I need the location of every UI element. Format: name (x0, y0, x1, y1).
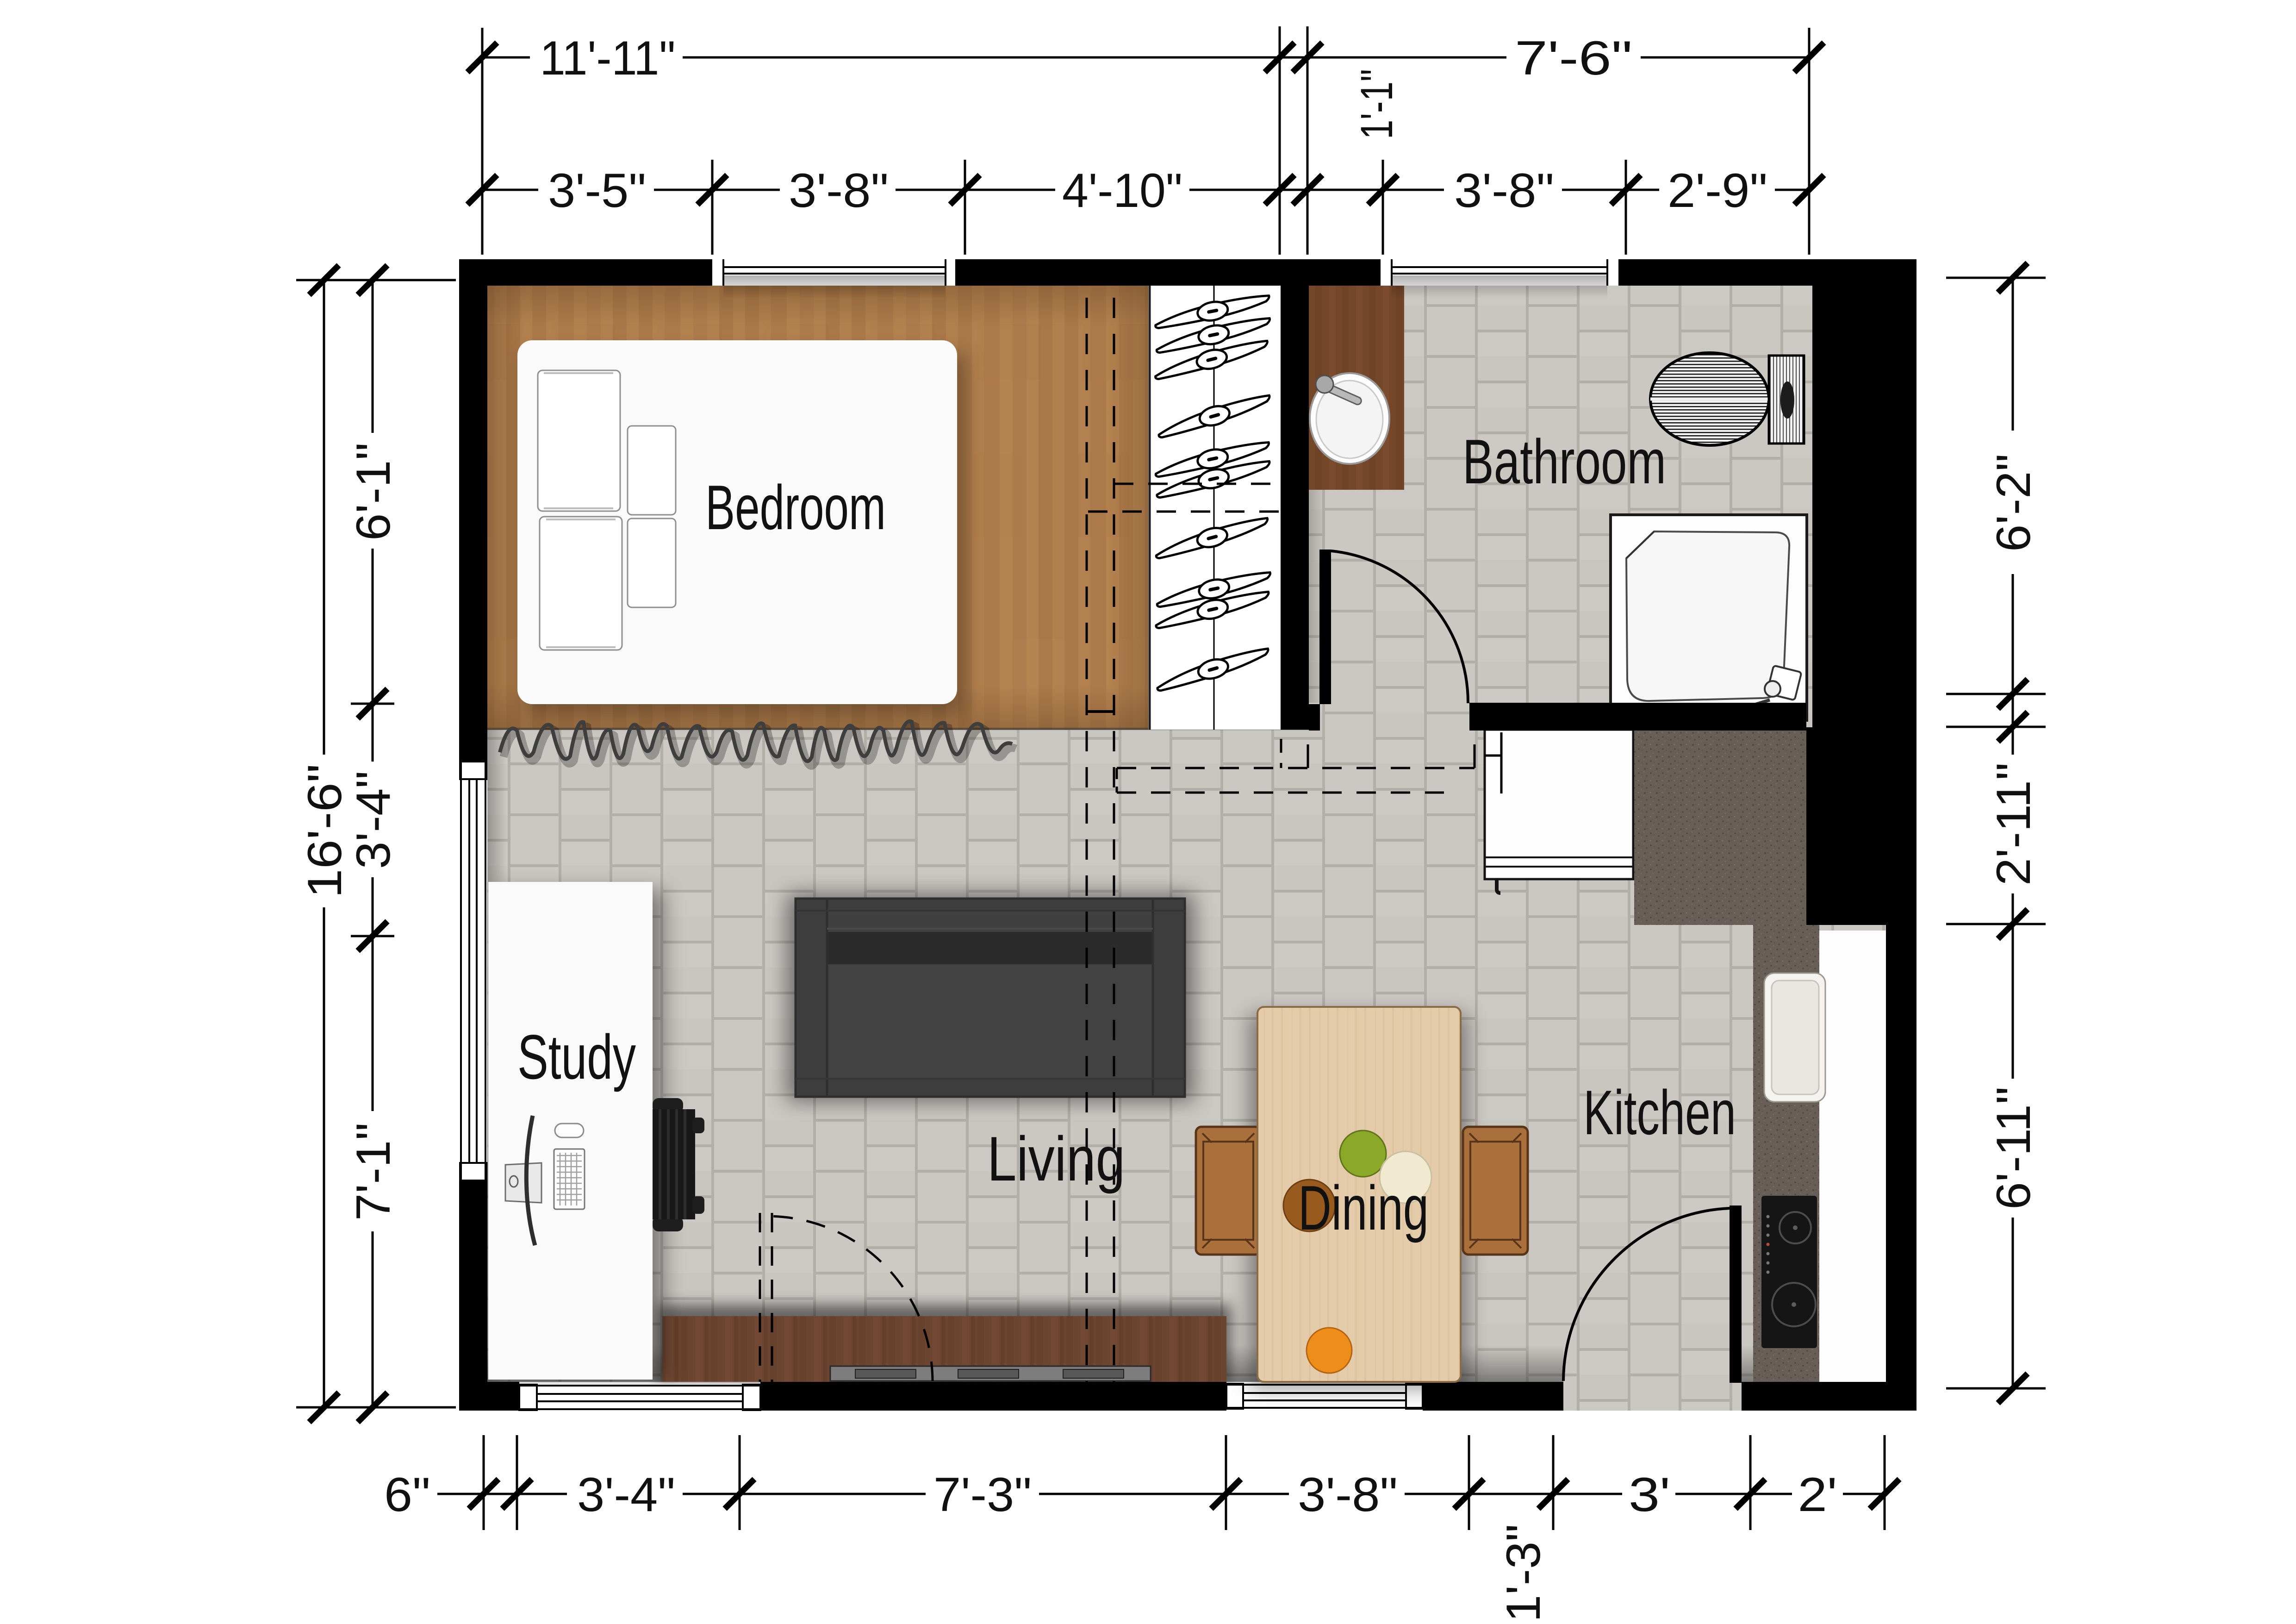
svg-text:2'-11": 2'-11" (1987, 762, 2041, 886)
svg-text:3': 3' (1629, 1468, 1670, 1522)
svg-text:3'-5": 3'-5" (548, 164, 646, 218)
svg-text:3'-8": 3'-8" (789, 164, 889, 218)
svg-text:6'-11": 6'-11" (1987, 1087, 2041, 1210)
svg-text:Dining: Dining (1298, 1173, 1429, 1243)
svg-text:3'-4": 3'-4" (577, 1468, 675, 1522)
svg-text:Study: Study (517, 1022, 636, 1092)
svg-text:1'-1": 1'-1" (1351, 69, 1402, 139)
svg-text:16'-6": 16'-6" (298, 764, 352, 898)
svg-text:3'-8": 3'-8" (1454, 164, 1554, 218)
svg-text:6'-2": 6'-2" (1987, 454, 2041, 552)
svg-text:7'-3": 7'-3" (933, 1468, 1032, 1522)
svg-text:2'-9": 2'-9" (1668, 164, 1767, 218)
svg-text:6": 6" (384, 1468, 430, 1522)
svg-text:3'-4": 3'-4" (347, 771, 400, 869)
svg-text:Bedroom: Bedroom (705, 472, 886, 543)
svg-text:1'-3": 1'-3" (1497, 1524, 1550, 1622)
svg-text:2': 2' (1798, 1468, 1837, 1522)
svg-text:7'-1": 7'-1" (347, 1123, 400, 1221)
svg-text:Bathroom: Bathroom (1462, 426, 1666, 497)
svg-text:Living: Living (987, 1124, 1125, 1194)
svg-text:6'-1": 6'-1" (347, 443, 400, 541)
svg-text:11'-11": 11'-11" (540, 31, 676, 85)
svg-text:Kitchen: Kitchen (1583, 1077, 1736, 1148)
svg-text:4'-10": 4'-10" (1062, 164, 1182, 218)
svg-text:7'-6": 7'-6" (1515, 31, 1632, 85)
svg-text:3'-8": 3'-8" (1298, 1468, 1398, 1522)
